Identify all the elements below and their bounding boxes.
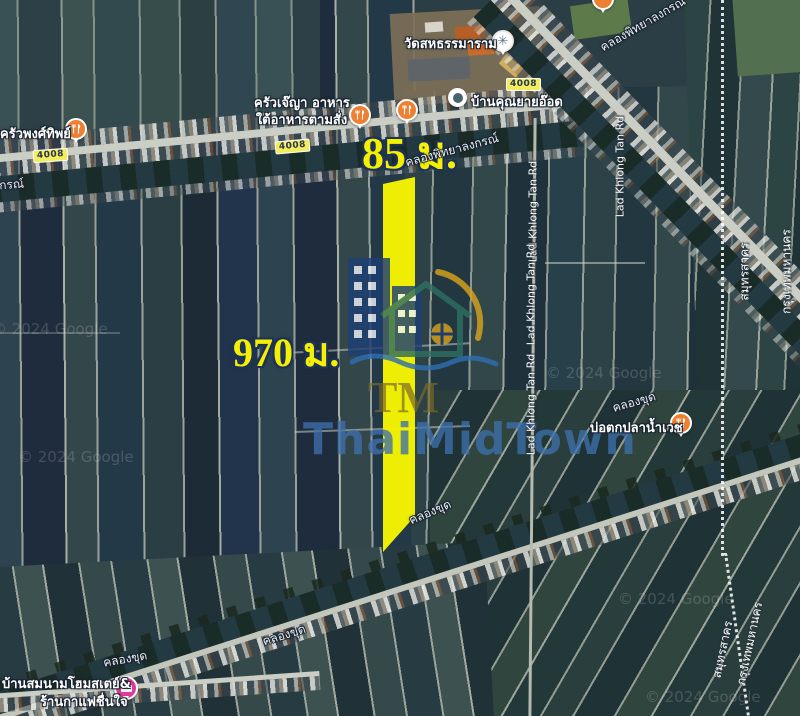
restaurant-poi-label[interactable]: ครัวพงศ์ทิพย์	[0, 123, 71, 144]
temple-poi-label[interactable]: วัดสหธรรมาราม	[404, 33, 497, 54]
road-label-lad-khlong-tan: Lad Khlong Tan Rd	[525, 240, 538, 350]
homestay-poi-label[interactable]: ร้านกาแฟชื่นใจ	[40, 691, 128, 712]
road-label-lad-khlong-tan: Lad Khlong Tan Rd	[525, 350, 538, 460]
building-roof	[425, 21, 444, 32]
temple-hall-roof	[407, 56, 470, 81]
green-field-patch	[732, 0, 800, 77]
fishing-pond-poi-label[interactable]: บ่อตกปลาน้ำเวช	[590, 417, 683, 438]
watermark-brand: ThaiMidTown	[303, 414, 637, 465]
road-badge-4008: 4008	[506, 78, 541, 91]
cut-poi[interactable]	[592, 0, 614, 10]
restaurant-icon[interactable]	[349, 104, 371, 126]
restaurant-icon[interactable]	[396, 99, 418, 121]
province-label-samut-sakhon: สมุทรสาคร	[736, 217, 755, 327]
levee-line	[545, 262, 645, 264]
satellite-map[interactable]: TM ThaiMidTown 85 ม. 970 ม. 4008 4008 40…	[0, 0, 800, 716]
attribution-text: © 2024 Google	[546, 364, 662, 382]
restaurant-icon[interactable]	[592, 0, 614, 10]
plot-length-measurement: 970 ม.	[233, 320, 339, 384]
attribution-text: © 2024 Google	[0, 320, 108, 338]
restaurant-poi[interactable]	[396, 99, 418, 121]
road-label-lad-khlong-tan: Lad Khlong Tan Rd	[614, 112, 627, 222]
grandma-house-poi[interactable]	[448, 88, 467, 107]
restaurant-poi[interactable]	[349, 104, 371, 126]
restaurant-poi-label[interactable]: ใต้อาหารตามสั่ง	[254, 109, 349, 130]
province-boundary-line	[721, 0, 724, 556]
attribution-text: © 2024 Google	[645, 688, 761, 706]
dot-icon[interactable]	[448, 88, 467, 107]
attribution-text: © 2024 Google	[618, 590, 734, 608]
grandma-house-poi-label[interactable]: บ้านคุณยายอ๊อด	[471, 91, 563, 112]
road-badge-4008: 4008	[33, 148, 69, 163]
province-label-bangkok: กรุงเทพมหานคร	[778, 217, 797, 327]
attribution-text: © 2024 Google	[18, 448, 134, 466]
